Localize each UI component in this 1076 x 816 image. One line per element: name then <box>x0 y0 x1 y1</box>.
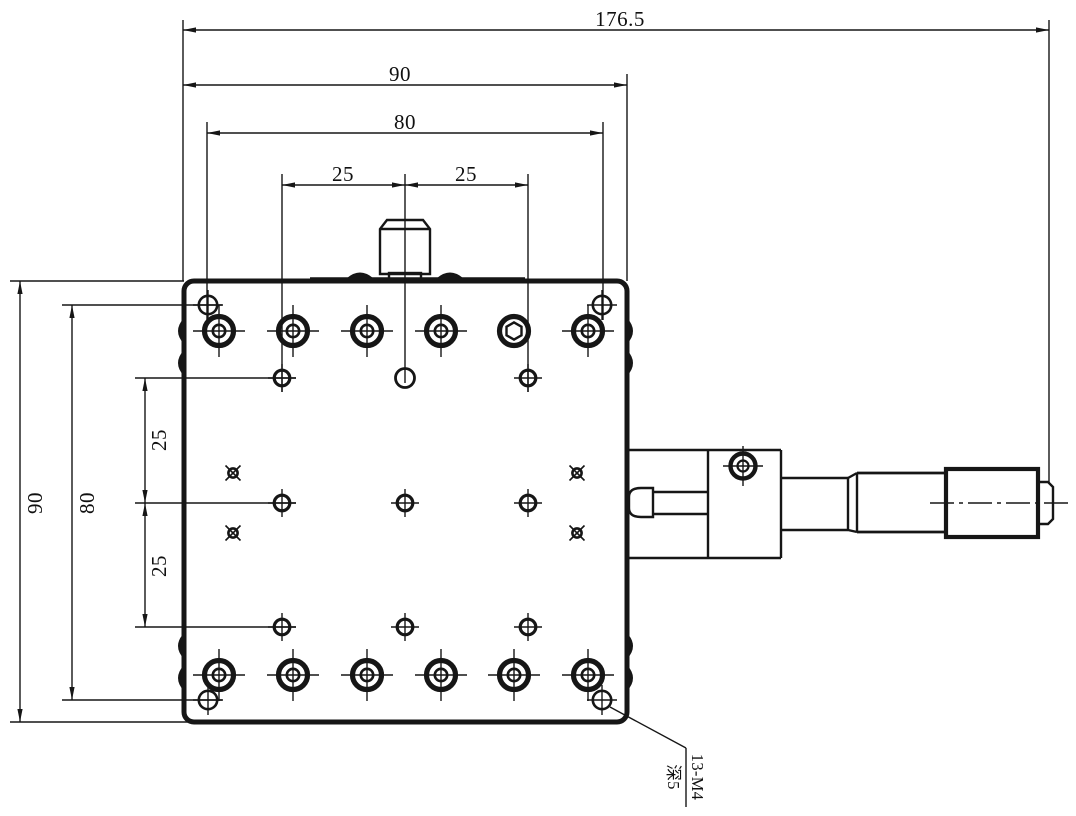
note-depth-callout: 深5 <box>664 764 683 789</box>
dimension-side-height: 90 <box>17 281 47 722</box>
dim-side-height-value: 90 <box>23 492 47 514</box>
leader-note: 13-M4 深5 <box>610 707 707 807</box>
dim-side-hole-span-value: 80 <box>75 492 99 514</box>
dim-top-width-value: 90 <box>389 62 411 86</box>
dimension-overall-length: 176.5 <box>183 7 1049 33</box>
hex-socket-screw <box>500 317 529 346</box>
dimension-top-hole-span: 80 <box>207 110 603 136</box>
engineering-drawing-canvas: 176.5 90 80 25 25 90 80 <box>0 0 1076 816</box>
dim-overall-length-value: 176.5 <box>595 7 645 31</box>
dimension-side-hole-span: 80 <box>69 305 99 700</box>
micrometer-spindle <box>629 488 708 517</box>
dim-top-hole-span-value: 80 <box>394 110 416 134</box>
dimension-top-width: 90 <box>183 62 627 88</box>
dim-side-pitch-lower-value: 25 <box>147 555 171 577</box>
dim-top-pitch-right-value: 25 <box>455 162 477 186</box>
note-thread-callout: 13-M4 <box>688 754 707 800</box>
micrometer-bracket <box>627 446 781 558</box>
bracket-screw <box>723 446 763 486</box>
dim-top-pitch-left-value: 25 <box>332 162 354 186</box>
micrometer-head <box>627 446 1072 558</box>
dim-side-pitch-upper-value: 25 <box>147 429 171 451</box>
